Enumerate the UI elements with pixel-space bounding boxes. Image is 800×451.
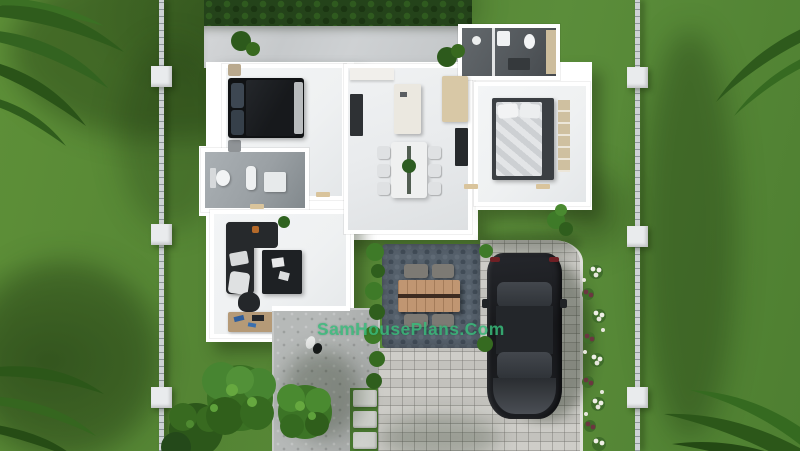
flower-bed: [582, 265, 606, 451]
palm-fronds-bottom-right: [664, 390, 800, 451]
palm-fronds-top-left: [0, 0, 124, 146]
watermark-text: SamHousePlans.Com: [317, 319, 505, 340]
palm-fronds-top-right: [716, 24, 800, 116]
vegetation-layer: [0, 0, 800, 451]
house-plan-render: SamHousePlans.Com: [0, 0, 800, 451]
tree-cluster-bottom-left: [161, 362, 332, 451]
palm-fronds-left: [0, 366, 104, 451]
